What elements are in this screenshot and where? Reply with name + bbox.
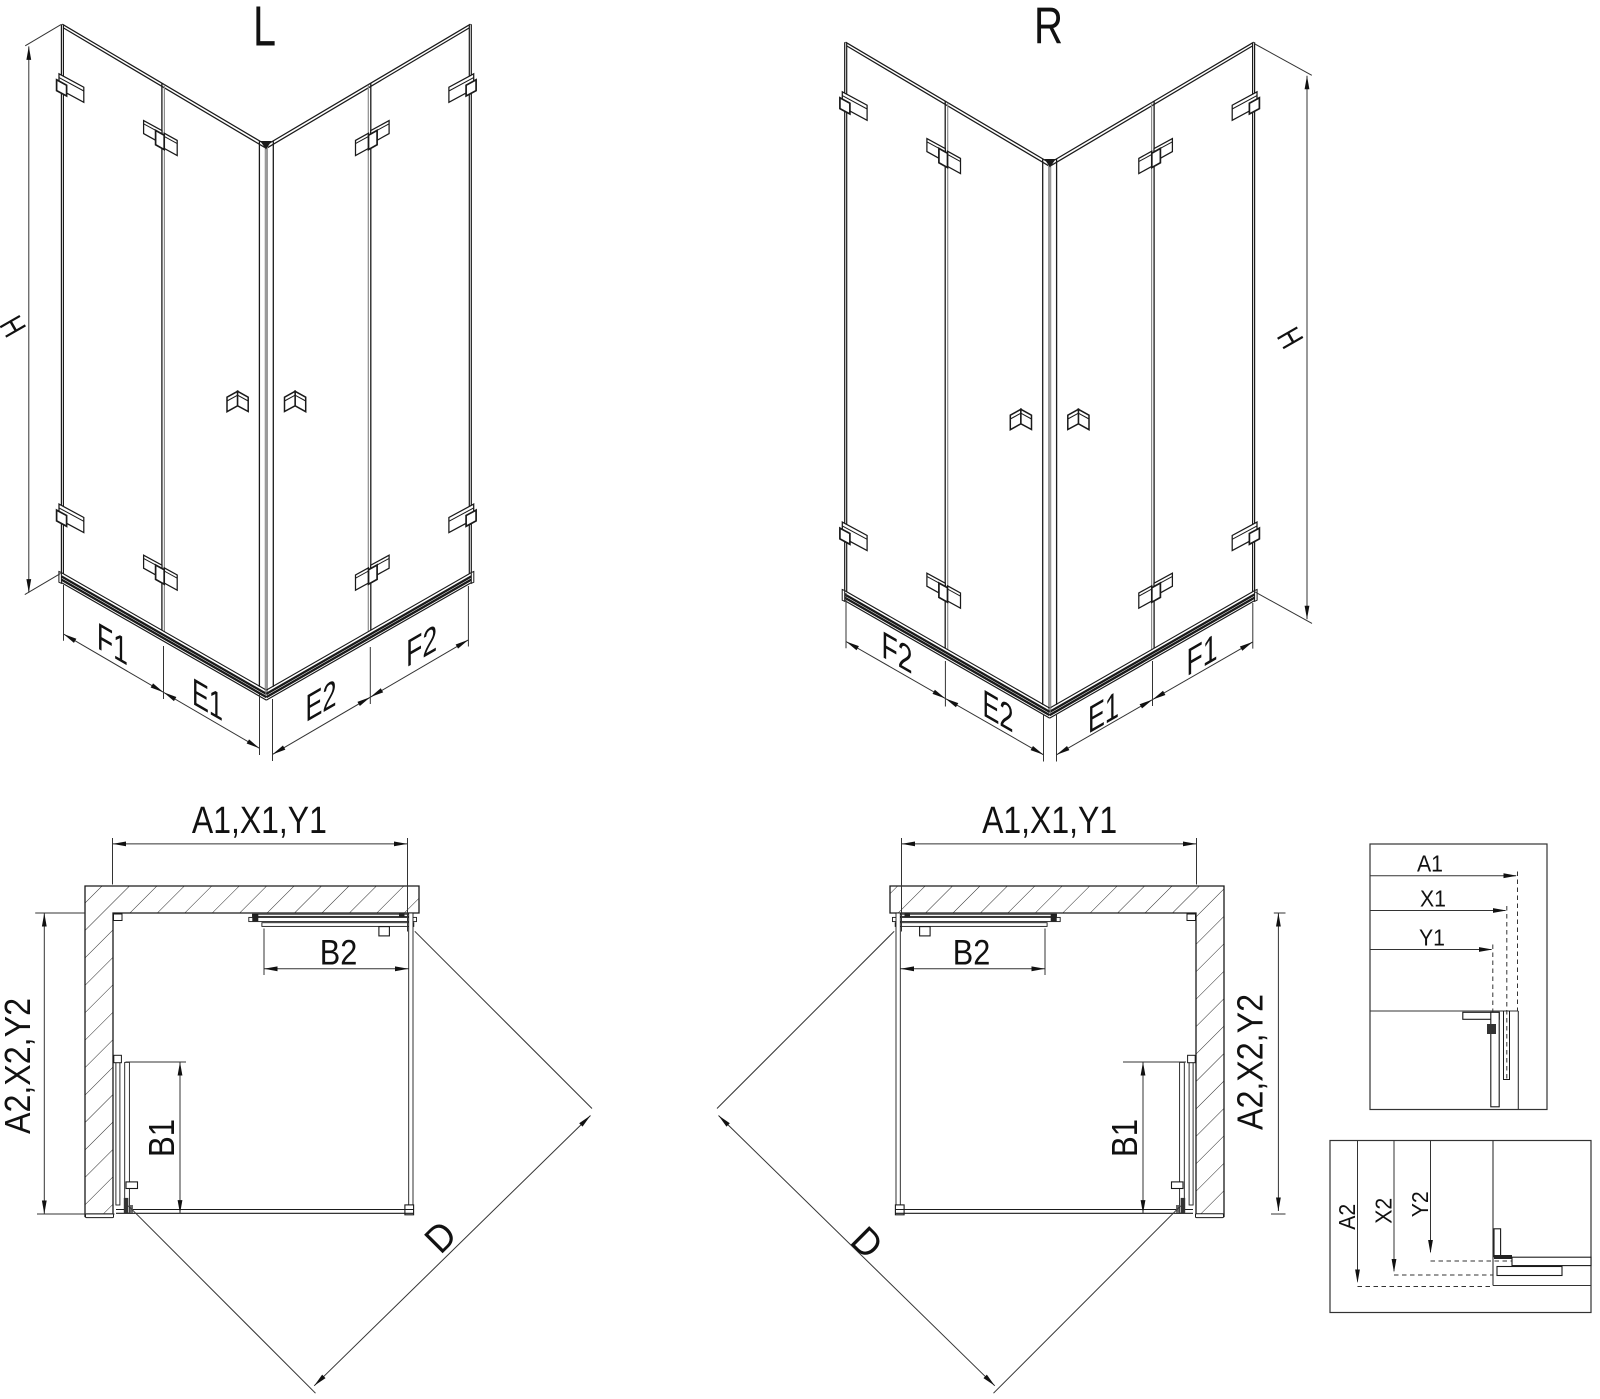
- svg-text:B1: B1: [1104, 1119, 1145, 1157]
- svg-text:A1: A1: [1417, 851, 1443, 877]
- svg-text:A2,X2,Y2: A2,X2,Y2: [1229, 994, 1270, 1130]
- svg-text:A2,X2,Y2: A2,X2,Y2: [0, 998, 38, 1134]
- svg-text:B2: B2: [953, 934, 991, 973]
- svg-text:A2: A2: [1334, 1204, 1360, 1230]
- svg-text:B1: B1: [141, 1119, 182, 1157]
- svg-text:L: L: [253, 0, 276, 58]
- svg-text:Y1: Y1: [1419, 924, 1445, 950]
- svg-text:Y2: Y2: [1407, 1191, 1433, 1217]
- svg-text:B2: B2: [320, 934, 358, 973]
- svg-text:X2: X2: [1371, 1198, 1397, 1224]
- svg-text:R: R: [1034, 0, 1063, 55]
- svg-text:A1,X1,Y1: A1,X1,Y1: [982, 800, 1117, 842]
- svg-text:A1,X1,Y1: A1,X1,Y1: [192, 800, 327, 842]
- svg-text:X1: X1: [1420, 885, 1446, 911]
